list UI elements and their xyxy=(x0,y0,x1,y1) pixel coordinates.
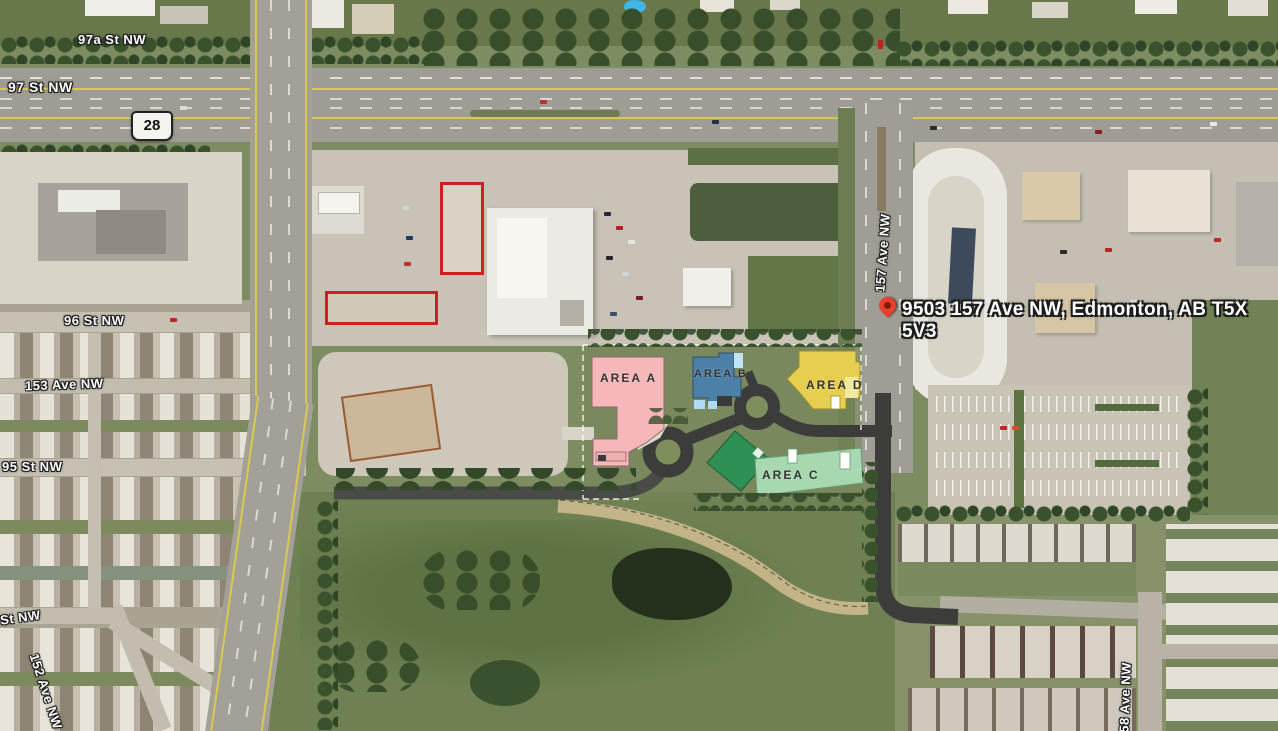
parking-stalls xyxy=(936,424,1182,440)
tree-cluster xyxy=(648,408,688,424)
roundabout-east xyxy=(740,390,774,424)
tree-clump-dark xyxy=(470,660,540,706)
building xyxy=(1228,0,1268,16)
tree-band xyxy=(316,500,338,730)
area-a-entry xyxy=(598,455,606,461)
townhouse-row xyxy=(930,626,1136,678)
building xyxy=(1135,0,1177,14)
area-c-entry xyxy=(788,449,797,463)
pad-building xyxy=(683,268,731,306)
vehicle xyxy=(1214,238,1221,242)
townhouse-row xyxy=(898,524,1136,562)
parking-island xyxy=(1095,460,1159,467)
lane-marking xyxy=(0,117,1278,119)
yard-strip xyxy=(0,420,272,432)
area-d-label: AREA D xyxy=(806,378,864,392)
parking-stalls xyxy=(936,480,1182,496)
area-b-entry xyxy=(717,396,732,406)
strip-mall-red-outline xyxy=(325,291,438,325)
area-b-patio xyxy=(708,401,717,409)
area-c-detail xyxy=(752,447,763,458)
highway-97st xyxy=(0,68,1278,142)
lane-marking xyxy=(0,77,1278,79)
road-157ave-verge xyxy=(838,108,856,473)
vehicle xyxy=(930,126,937,130)
vehicle xyxy=(610,312,617,316)
strip-mall-red-outline xyxy=(440,182,484,275)
yard-strip xyxy=(898,562,1136,596)
parking-island xyxy=(1014,390,1024,508)
vehicle xyxy=(622,272,629,276)
vehicle xyxy=(604,212,611,216)
area-b-label: AREA B xyxy=(694,368,748,380)
casino-roof xyxy=(58,190,120,212)
tree-band xyxy=(1186,388,1208,516)
lane-marking xyxy=(305,0,307,420)
vehicle xyxy=(616,226,623,230)
roundabout-west xyxy=(649,433,687,471)
area-a-label: AREA A xyxy=(600,371,657,385)
lane-marking xyxy=(0,88,1278,90)
street-label-95: 95 St NW xyxy=(2,460,62,473)
area-a-wing xyxy=(596,452,626,461)
vehicle xyxy=(878,40,883,49)
vehicle xyxy=(404,262,411,266)
retail-building xyxy=(1128,170,1210,232)
transit-shelter xyxy=(948,227,976,304)
vacant-green xyxy=(688,148,858,165)
tree-band xyxy=(895,505,1190,523)
vehicle xyxy=(628,240,635,244)
vehicle xyxy=(1000,426,1007,430)
median-strip xyxy=(470,110,620,117)
vacant-green xyxy=(690,183,856,241)
street-minor xyxy=(88,333,101,608)
site-road-stub xyxy=(748,372,756,391)
pin-center-dot xyxy=(883,301,893,311)
street-label-158ave: 158 Ave NW xyxy=(1117,662,1133,731)
vehicle xyxy=(712,120,719,124)
lane-marking xyxy=(270,0,272,420)
lane-marking xyxy=(288,0,290,420)
vehicle xyxy=(1012,426,1019,430)
townhouse-row xyxy=(908,688,1136,731)
tree-clump xyxy=(420,550,540,610)
vehicle xyxy=(1105,248,1112,252)
bigbox-roof-unit xyxy=(497,218,547,298)
vehicle xyxy=(1060,250,1067,254)
highway-28-shield: 28 xyxy=(131,111,173,141)
area-c-building-dark xyxy=(707,431,769,491)
building xyxy=(85,0,155,16)
tree-band xyxy=(895,40,1278,66)
address-marker-label: 9503 157 Ave NW, Edmonton, AB T5X 5V3 xyxy=(902,299,1278,343)
median xyxy=(877,127,886,211)
lane-marking xyxy=(865,103,867,473)
tree-clump xyxy=(330,640,420,692)
vehicle xyxy=(402,206,409,210)
tree-band xyxy=(0,36,430,64)
street-label-97: 97 St NW xyxy=(8,80,73,94)
vehicle xyxy=(406,236,413,240)
vehicle xyxy=(1210,122,1217,126)
area-c-label: AREA C xyxy=(762,468,820,482)
lane-marking xyxy=(0,98,1278,100)
lane-marking xyxy=(0,127,1278,129)
lane-marking xyxy=(0,107,1278,109)
area-b-tab xyxy=(734,353,743,368)
vehicle xyxy=(606,256,613,260)
gas-canopy xyxy=(318,192,360,214)
street-label-96: 96 St NW xyxy=(64,314,124,327)
vehicle xyxy=(1095,130,1102,134)
tree-band xyxy=(420,8,900,66)
building xyxy=(352,4,394,34)
aerial-map-canvas[interactable]: 97a St NW 97 St NW 28 96 St NW 153 Ave N… xyxy=(0,0,1278,731)
casino-roof xyxy=(96,210,166,254)
bigbox-dock xyxy=(560,300,584,326)
vehicle xyxy=(170,318,177,322)
area-b-patio xyxy=(694,400,705,409)
lane-marking xyxy=(255,0,257,420)
building xyxy=(1032,2,1068,18)
site-road-connector xyxy=(681,417,744,442)
street-label-153ave: 153 Ave NW xyxy=(25,377,104,393)
retail-building xyxy=(1236,182,1278,266)
street-158ave xyxy=(1138,592,1162,731)
street-residential xyxy=(1162,644,1278,659)
housing-block xyxy=(1166,524,1278,731)
parking-island xyxy=(1095,404,1159,411)
lane-marking xyxy=(899,103,901,473)
arterial-road-97st xyxy=(250,0,312,420)
street-label-97a: 97a St NW xyxy=(78,33,146,46)
building xyxy=(948,0,988,14)
vehicle xyxy=(180,106,187,110)
building xyxy=(160,6,208,24)
vehicle xyxy=(540,100,547,104)
vehicle xyxy=(636,296,643,300)
restaurant-building xyxy=(341,384,441,462)
retail-building xyxy=(1022,172,1080,220)
plaza xyxy=(628,418,668,450)
housing-block xyxy=(0,333,280,378)
